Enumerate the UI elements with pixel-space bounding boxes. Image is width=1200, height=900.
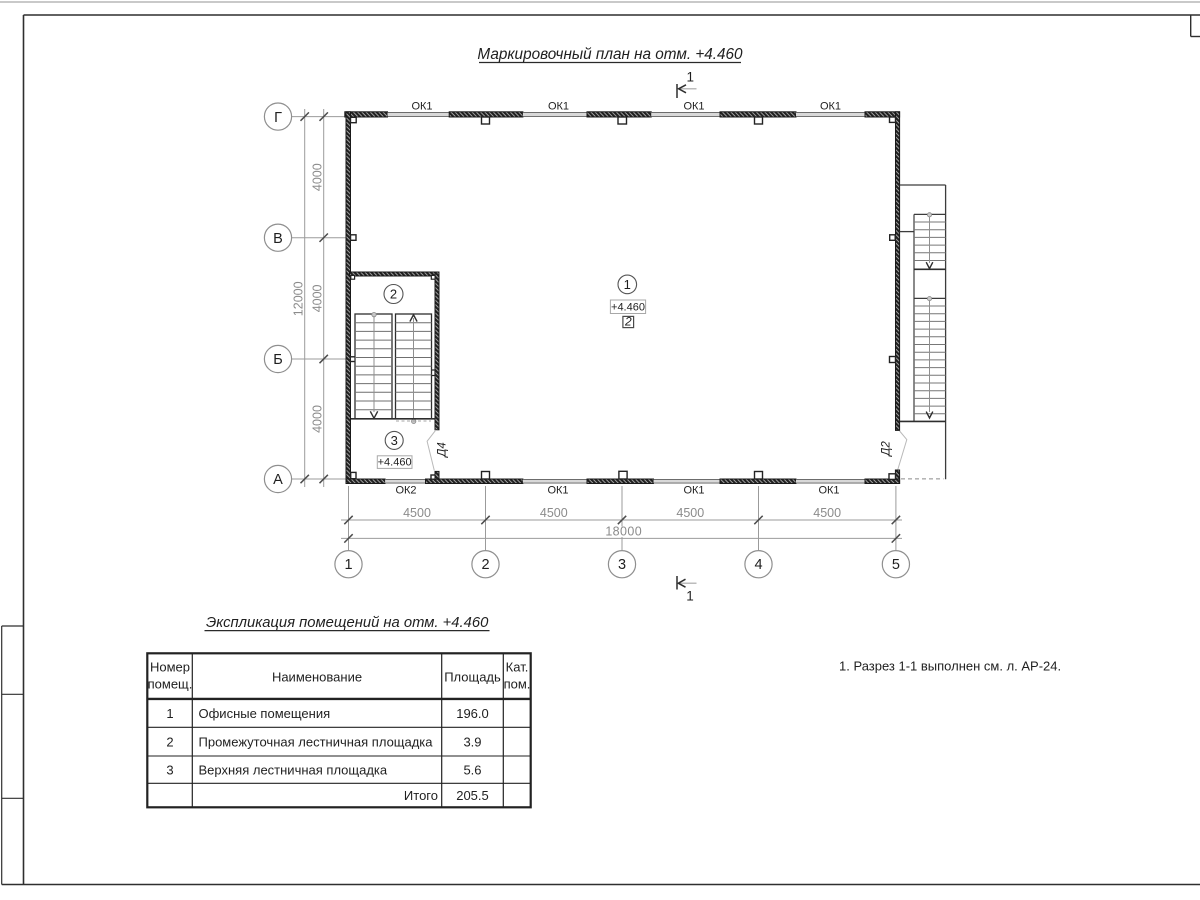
- svg-text:+4.460: +4.460: [378, 456, 412, 468]
- svg-text:3: 3: [391, 433, 398, 448]
- svg-text:196.0: 196.0: [456, 706, 489, 721]
- svg-text:1. Разрез 1-1 выполнен см. л.: 1. Разрез 1-1 выполнен см. л. АР-24.: [839, 659, 1061, 674]
- svg-text:4: 4: [754, 557, 762, 573]
- svg-text:1: 1: [687, 70, 695, 85]
- svg-text:2: 2: [481, 557, 489, 573]
- svg-text:4500: 4500: [813, 506, 841, 520]
- svg-text:Верхняя лестничная площадка: Верхняя лестничная площадка: [199, 763, 388, 778]
- svg-text:ОК1: ОК1: [411, 100, 432, 112]
- svg-text:18000: 18000: [605, 525, 642, 539]
- svg-text:Площадь: Площадь: [444, 670, 501, 685]
- svg-text:Д4: Д4: [437, 442, 449, 459]
- svg-text:3.9: 3.9: [463, 735, 481, 750]
- svg-text:ОК1: ОК1: [818, 485, 839, 497]
- svg-text:Итого: Итого: [404, 788, 438, 803]
- svg-text:2: 2: [390, 287, 397, 302]
- svg-text:1: 1: [166, 706, 173, 721]
- svg-text:3: 3: [618, 557, 626, 573]
- svg-text:Б: Б: [273, 352, 283, 368]
- svg-text:1: 1: [624, 277, 631, 292]
- svg-text:1: 1: [344, 557, 352, 573]
- svg-text:Экспликация помещений на отм.: Экспликация помещений на отм. +4.460: [206, 615, 489, 631]
- svg-text:12000: 12000: [292, 281, 306, 316]
- svg-text:5.6: 5.6: [463, 763, 481, 778]
- svg-text:Маркировочный план на отм. +4.: Маркировочный план на отм. +4.460: [477, 46, 743, 63]
- svg-text:Д2: Д2: [881, 441, 893, 458]
- svg-text:В: В: [273, 231, 283, 247]
- svg-text:ОК1: ОК1: [683, 485, 704, 497]
- svg-text:4000: 4000: [311, 284, 325, 312]
- svg-text:5: 5: [892, 557, 900, 573]
- svg-text:4500: 4500: [540, 506, 568, 520]
- svg-text:4500: 4500: [676, 506, 704, 520]
- svg-text:пом.: пом.: [504, 677, 531, 692]
- svg-text:Номер: Номер: [150, 660, 190, 675]
- svg-text:+4.460: +4.460: [611, 301, 645, 313]
- svg-text:ОК1: ОК1: [683, 100, 704, 112]
- svg-text:2: 2: [166, 735, 173, 750]
- svg-text:Промежуточная лестничная площа: Промежуточная лестничная площадка: [199, 735, 434, 750]
- svg-text:ОК2: ОК2: [395, 485, 416, 497]
- svg-text:4000: 4000: [311, 163, 325, 191]
- svg-text:205.5: 205.5: [456, 788, 489, 803]
- svg-text:Г: Г: [274, 110, 282, 126]
- svg-text:ОК1: ОК1: [547, 485, 568, 497]
- svg-text:А: А: [273, 472, 283, 488]
- svg-text:1: 1: [686, 589, 694, 604]
- svg-text:ОК1: ОК1: [548, 100, 569, 112]
- svg-text:Офисные помещения: Офисные помещения: [199, 706, 331, 721]
- svg-text:2: 2: [624, 315, 632, 329]
- svg-text:помещ.: помещ.: [148, 677, 193, 692]
- svg-text:Кат.: Кат.: [506, 660, 529, 675]
- svg-text:3: 3: [166, 763, 173, 778]
- svg-text:4500: 4500: [403, 506, 431, 520]
- svg-text:Наименование: Наименование: [272, 670, 362, 685]
- svg-text:4000: 4000: [311, 405, 325, 433]
- svg-text:ОК1: ОК1: [820, 100, 841, 112]
